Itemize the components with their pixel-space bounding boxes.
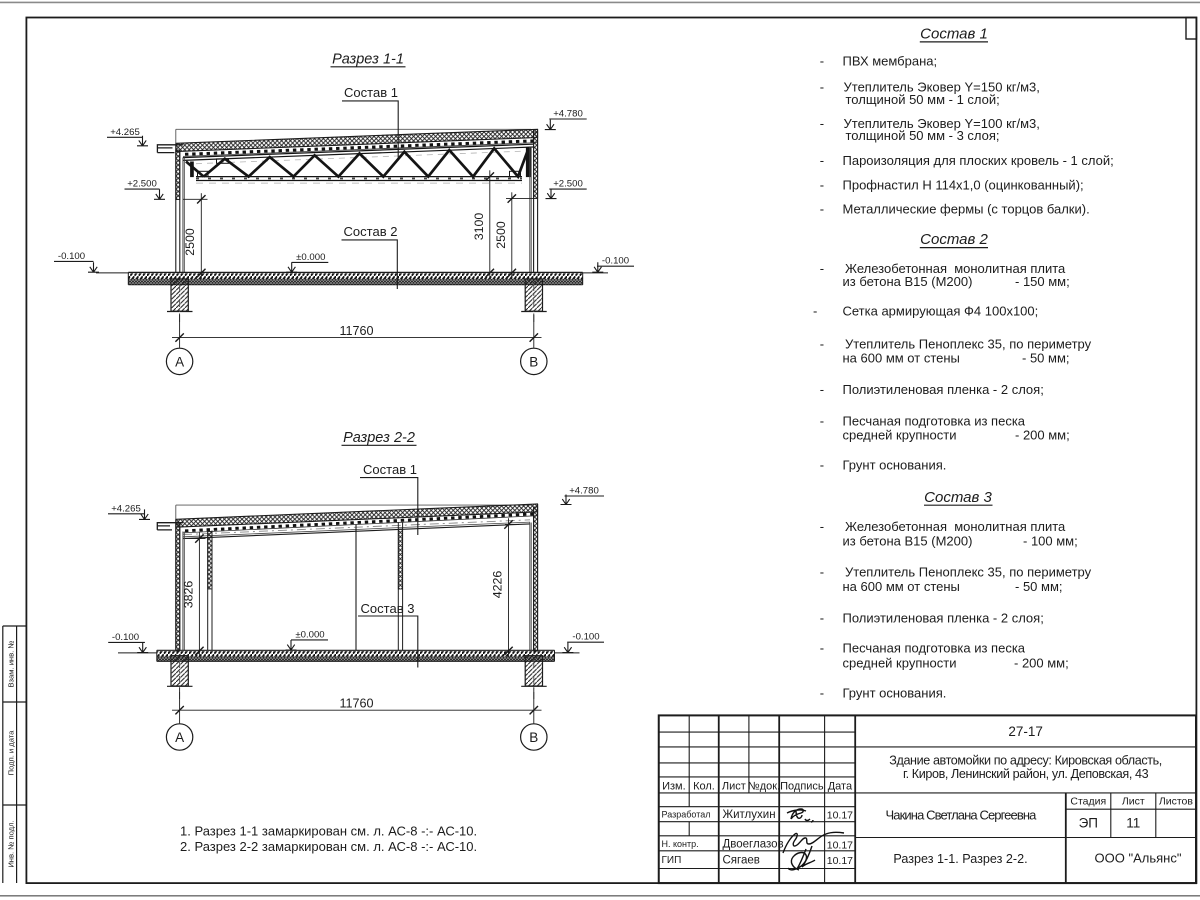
svg-text:-: -: [820, 337, 824, 352]
svg-text:-0.100: -0.100: [602, 256, 629, 267]
svg-text:Утеплитель Пеноплекс 35, по пе: Утеплитель Пеноплекс 35, по периметру: [845, 337, 1092, 352]
svg-text:Листов: Листов: [1159, 795, 1194, 807]
svg-text:толщиной 50 мм - 3 слоя;: толщиной 50 мм - 3 слоя;: [846, 128, 1000, 143]
svg-text:Состав 1: Состав 1: [344, 85, 398, 100]
svg-text:Лист: Лист: [1122, 795, 1145, 807]
svg-text:из бетона В15 (М200): из бетона В15 (М200): [843, 533, 973, 548]
svg-text:-: -: [820, 564, 824, 579]
svg-text:10.17: 10.17: [827, 839, 853, 851]
svg-text:+4.780: +4.780: [569, 486, 599, 497]
svg-text:-: -: [820, 54, 824, 69]
svg-text:±0.000: ±0.000: [296, 252, 325, 263]
svg-text:Кол.: Кол.: [693, 781, 715, 793]
svg-text:В: В: [529, 354, 538, 369]
svg-text:-: -: [820, 458, 824, 473]
svg-text:-: -: [820, 153, 824, 168]
svg-text:2. Разрез 2-2 замаркирован см.: 2. Разрез 2-2 замаркирован см. л. АС-8 -…: [180, 839, 477, 854]
svg-text:Полиэтиленовая пленка - 2 слоя: Полиэтиленовая пленка - 2 слоя;: [843, 610, 1044, 625]
svg-text:-: -: [820, 413, 824, 428]
svg-text:толщиной 50 мм - 1 слой;: толщиной 50 мм - 1 слой;: [846, 92, 1000, 107]
svg-text:-: -: [820, 80, 824, 95]
svg-text:ЭП: ЭП: [1079, 816, 1098, 831]
svg-text:ГИП: ГИП: [662, 855, 682, 866]
svg-text:-: -: [820, 201, 824, 216]
svg-text:В: В: [529, 730, 538, 745]
svg-text:Состав 2: Состав 2: [920, 231, 988, 248]
svg-text:11760: 11760: [339, 324, 373, 338]
svg-text:Здание автомойки по адресу: Ки: Здание автомойки по адресу: Кировская об…: [889, 753, 1162, 767]
svg-text:+2.500: +2.500: [127, 179, 157, 190]
svg-text:Грунт основания.: Грунт основания.: [843, 686, 947, 701]
svg-text:Состав 3: Состав 3: [361, 601, 415, 616]
svg-text:Сягаев: Сягаев: [723, 854, 760, 866]
svg-text:-: -: [820, 641, 824, 656]
svg-text:2500: 2500: [183, 228, 197, 256]
svg-text:ООО "Альянс": ООО "Альянс": [1095, 850, 1182, 865]
svg-text:Чакина Светлана Сергеевна: Чакина Светлана Сергеевна: [886, 808, 1038, 823]
svg-text:Состав 2: Состав 2: [344, 224, 398, 239]
svg-text:+2.500: +2.500: [553, 179, 583, 190]
svg-text:-: -: [813, 304, 817, 319]
svg-text:-: -: [820, 178, 824, 193]
svg-text:2500: 2500: [494, 221, 508, 249]
svg-text:Металлические фермы (с торцов: Металлические фермы (с торцов балки).: [843, 201, 1090, 216]
svg-text:Песчаная подготовка из песка: Песчаная подготовка из песка: [843, 641, 1026, 656]
svg-text:на 600 мм от стены: на 600 мм от стены: [843, 351, 960, 366]
svg-text:10.17: 10.17: [827, 855, 853, 867]
svg-text:Подп. и дата: Подп. и дата: [7, 730, 16, 776]
svg-text:Двоеглазов: Двоеглазов: [723, 838, 784, 850]
svg-text:Профнастил Н 114х1,0 (оцинкова: Профнастил Н 114х1,0 (оцинкованный);: [843, 178, 1084, 193]
svg-text:Состав 3: Состав 3: [924, 489, 992, 506]
svg-text:Состав 1: Состав 1: [363, 462, 417, 477]
svg-text:27-17: 27-17: [1008, 724, 1043, 739]
svg-text:Дата: Дата: [828, 781, 853, 793]
svg-text:- 200 мм;: - 200 мм;: [1015, 427, 1070, 442]
svg-text:11760: 11760: [339, 696, 373, 710]
svg-text:на 600 мм от стены: на 600 мм от стены: [843, 579, 960, 594]
svg-text:средней крупности: средней крупности: [843, 655, 957, 670]
svg-text:Утеплитель Пеноплекс 35, по пе: Утеплитель Пеноплекс 35, по периметру: [845, 564, 1092, 579]
svg-text:Житлухин: Житлухин: [723, 809, 776, 821]
svg-text:-: -: [820, 610, 824, 625]
svg-text:Сетка армирующая Ф4 100х100;: Сетка армирующая Ф4 100х100;: [843, 304, 1039, 319]
svg-text:-0.100: -0.100: [58, 251, 85, 262]
svg-text:Полиэтиленовая пленка - 2 слоя: Полиэтиленовая пленка - 2 слоя;: [843, 382, 1044, 397]
svg-text:Разрез 1-1: Разрез 1-1: [332, 52, 404, 68]
svg-text:А: А: [175, 354, 184, 369]
svg-text:№док.: №док.: [748, 781, 780, 793]
svg-text:Лист: Лист: [722, 781, 746, 793]
svg-text:±0.000: ±0.000: [295, 629, 324, 640]
svg-text:Железобетонная монолитная пли: Железобетонная монолитная плита: [845, 519, 1066, 534]
svg-text:-0.100: -0.100: [572, 632, 599, 643]
svg-text:- 100 мм;: - 100 мм;: [1023, 533, 1078, 548]
svg-text:Н. контр.: Н. контр.: [662, 839, 699, 849]
svg-text:Подпись: Подпись: [780, 781, 824, 793]
svg-text:+4.265: +4.265: [111, 503, 141, 514]
svg-text:3826: 3826: [182, 581, 196, 609]
svg-text:11: 11: [1126, 816, 1140, 831]
svg-text:Пароизоляция для плоских крове: Пароизоляция для плоских кровель - 1 сло…: [843, 153, 1114, 168]
svg-text:средней крупности: средней крупности: [843, 427, 957, 442]
svg-text:-: -: [820, 686, 824, 701]
svg-text:Разработал: Разработал: [662, 810, 711, 820]
svg-text:из бетона В15 (М200): из бетона В15 (М200): [843, 274, 973, 289]
svg-text:+4.780: +4.780: [553, 109, 583, 120]
svg-text:Песчаная подготовка из песка: Песчаная подготовка из песка: [843, 413, 1026, 428]
svg-text:10.17: 10.17: [827, 810, 853, 822]
svg-text:Стадия: Стадия: [1070, 795, 1106, 807]
svg-text:Взам. инв. №: Взам. инв. №: [7, 640, 16, 687]
svg-text:-0.100: -0.100: [112, 632, 139, 643]
svg-text:3100: 3100: [472, 213, 486, 241]
svg-text:- 50 мм;: - 50 мм;: [1015, 579, 1063, 594]
svg-text:Состав 1: Состав 1: [920, 26, 988, 43]
svg-text:1. Разрез 1-1 замаркирован см.: 1. Разрез 1-1 замаркирован см. л. АС-8 -…: [180, 824, 477, 839]
svg-text:-: -: [820, 116, 824, 131]
svg-text:-: -: [820, 382, 824, 397]
svg-text:+4.265: +4.265: [110, 127, 140, 138]
svg-text:Разрез 2-2: Разрез 2-2: [343, 430, 415, 446]
svg-text:Разрез 1-1. Разрез 2-2.: Разрез 1-1. Разрез 2-2.: [893, 852, 1027, 866]
svg-text:А: А: [175, 730, 184, 745]
svg-text:- 200 мм;: - 200 мм;: [1014, 655, 1069, 670]
svg-text:- 50 мм;: - 50 мм;: [1022, 351, 1070, 366]
svg-text:Инв. № подл.: Инв. № подл.: [7, 820, 16, 867]
svg-text:- 150 мм;: - 150 мм;: [1015, 274, 1070, 289]
svg-text:-: -: [820, 519, 824, 534]
svg-text:ПВХ мембрана;: ПВХ мембрана;: [843, 54, 938, 69]
svg-text:г. Киров, Ленинский район, ул.: г. Киров, Ленинский район, ул. Деповская…: [903, 767, 1149, 781]
svg-text:4226: 4226: [491, 571, 505, 599]
svg-text:-: -: [820, 261, 824, 276]
svg-text:Изм.: Изм.: [662, 781, 686, 793]
svg-text:Грунт основания.: Грунт основания.: [843, 458, 947, 473]
